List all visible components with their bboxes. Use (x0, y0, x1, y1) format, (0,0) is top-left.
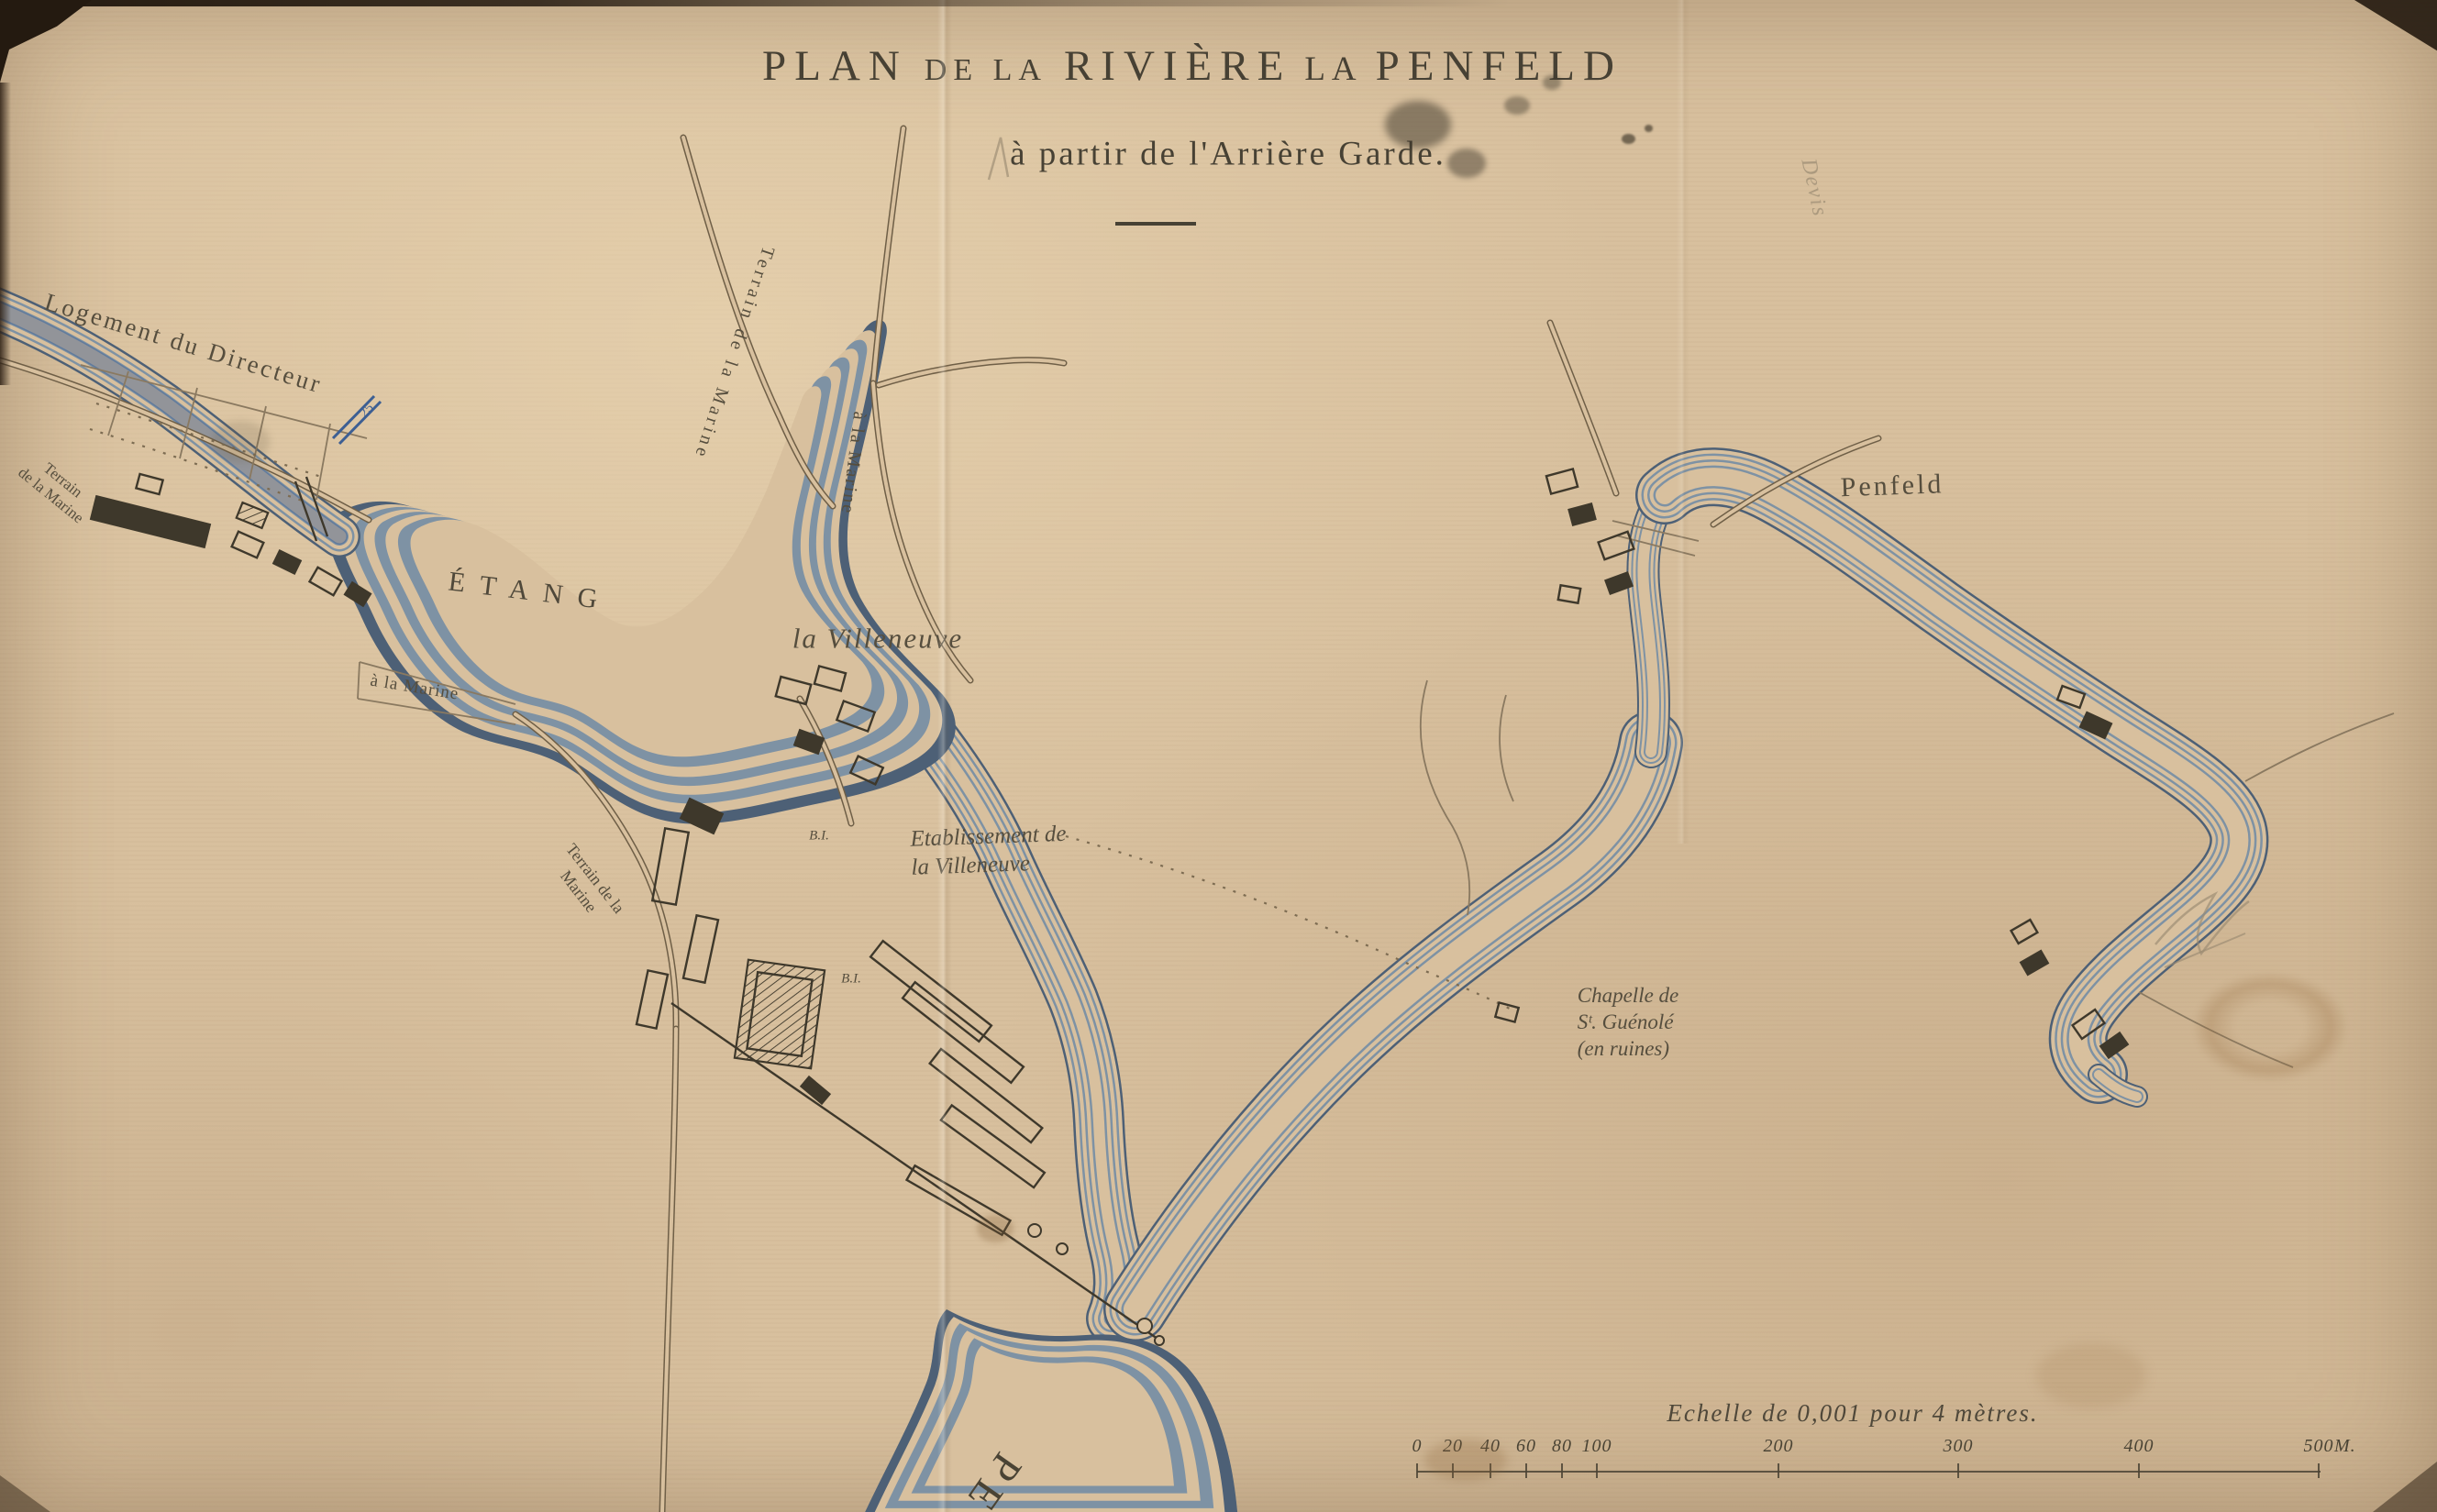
scale-bar: 0 20 40 60 80 100 200 300 400 500 M. (1417, 1440, 2362, 1495)
penfeld-river-neck (1643, 495, 1665, 752)
title-part-penfeld: PENFELD (1376, 42, 1623, 90)
etang-pond (328, 320, 956, 824)
estuary-widening (860, 1309, 1238, 1512)
label-etablissement-2: la Villeneuve (911, 848, 1068, 882)
map-title: PLAN DE LA RIVIÈRE LA PENFELD (762, 41, 1623, 91)
title-rule (1115, 222, 1196, 226)
penfeld-river-northeast-run (1135, 743, 1651, 1309)
label-bi-lower: B.I. (841, 971, 861, 988)
label-chapelle-2: Sᵗ. Guénolé (1578, 1010, 1679, 1036)
map-sheet: PLAN DE LA RIVIÈRE LA PENFELD à partir d… (0, 0, 2437, 1512)
scale-bar-line (1417, 1471, 2321, 1473)
label-la-villeneuve: la Villeneuve (792, 622, 963, 657)
label-chapelle-3: (en ruines) (1578, 1035, 1679, 1062)
label-chapelle-1: Chapelle de (1578, 983, 1679, 1010)
map-artwork (0, 0, 2437, 1512)
chapel-mark (1495, 1002, 1518, 1021)
label-penfeld: Penfeld (1840, 467, 1944, 504)
roads (0, 128, 2394, 1512)
title-part-dela: DE LA (925, 53, 1047, 87)
label-bi-upper: B.I. (809, 828, 829, 845)
map-subtitle: à partir de l'Arrière Garde. (1010, 135, 1446, 174)
scale-caption: Echelle de 0,001 pour 4 mètres. (1667, 1398, 2038, 1429)
penfeld-river-east-loop (1665, 477, 2239, 1097)
title-part-plan: PLAN (762, 42, 908, 90)
label-etablissement-1: Etablissement de (910, 820, 1067, 854)
title-part-la: LA (1304, 50, 1362, 88)
title-part-riviere: RIVIÈRE (1064, 42, 1291, 90)
blue-depth-mark (333, 396, 381, 444)
